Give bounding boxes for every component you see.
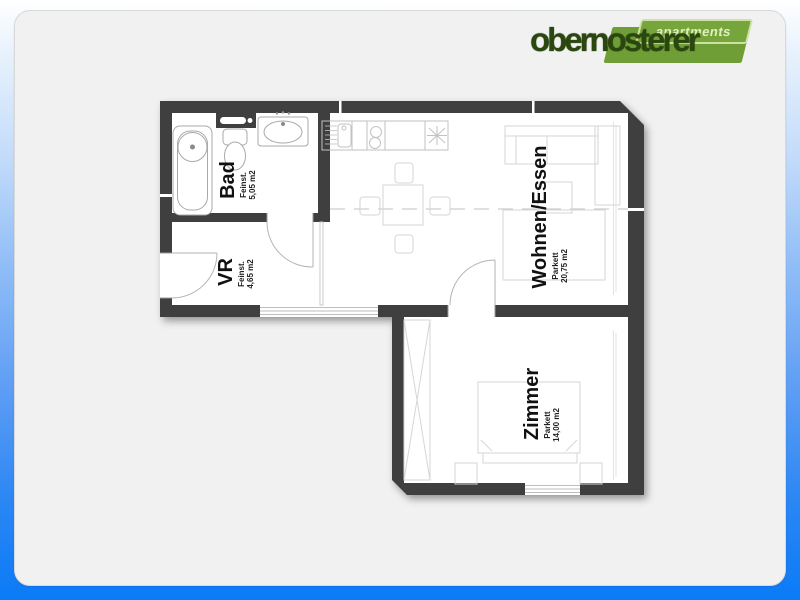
cooktop-symbol-icon [427, 126, 447, 145]
room-label-vr: VR Feinst. 4,65 m2 [215, 258, 255, 289]
room-area: 14,00 m2 [552, 408, 561, 442]
washbasin-icon [258, 111, 308, 146]
room-floor-type: Feinst. [239, 172, 248, 198]
room-name: Bad [217, 161, 239, 199]
room-name: VR [215, 258, 237, 286]
room-name: Zimmer [521, 368, 543, 440]
room-floor-type: Parkett [551, 252, 560, 279]
brand-logo[interactable]: apartments obernosterer [528, 15, 760, 73]
room-area: 20,75 m2 [560, 249, 569, 283]
room-area: 5,05 m2 [248, 170, 257, 200]
floor-plan: Bad Feinst. 5,05 m2 VR Feinst. 4,65 m2 W… [150, 90, 670, 520]
room-area: 4,65 m2 [246, 259, 255, 289]
room-name: Wohnen/Essen [529, 146, 551, 289]
logo-brand-text: obernosterer [530, 21, 758, 59]
room-floor-type: Feinst. [237, 261, 246, 287]
room-floor-type: Parkett [543, 411, 552, 438]
bathtub-icon [173, 126, 212, 215]
washing-machine-icon [216, 113, 256, 128]
